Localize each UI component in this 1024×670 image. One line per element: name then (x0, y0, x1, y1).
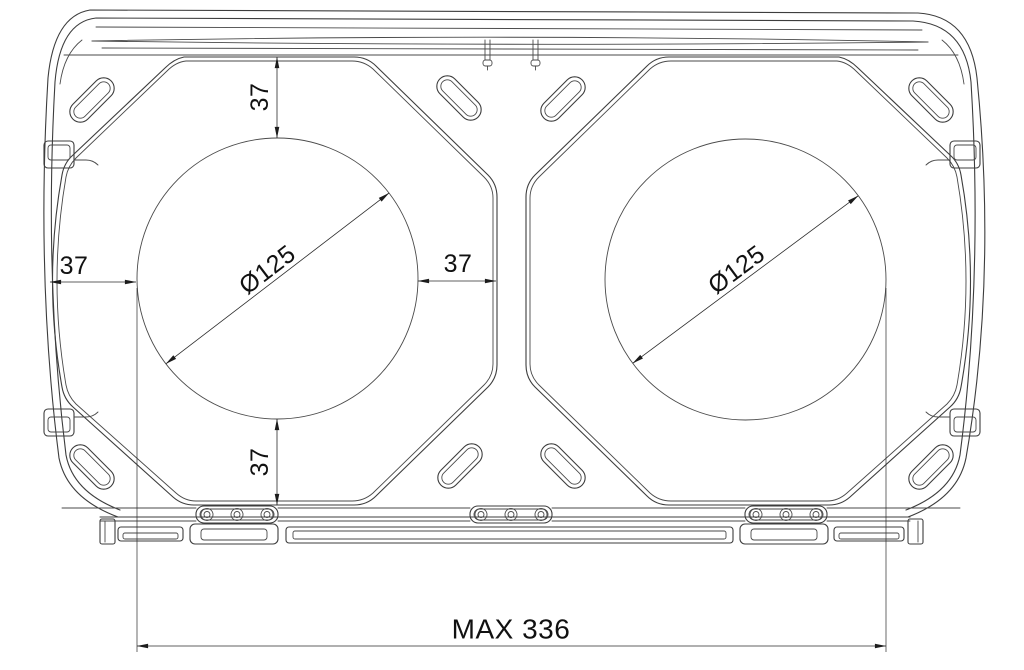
dim-label-left-margin: 37 (60, 252, 89, 280)
flange-rail-3 (286, 527, 733, 543)
mounting-slot-center-bottom-left (433, 439, 486, 492)
flange-rail-5 (834, 527, 904, 541)
rim-line-2 (102, 48, 918, 50)
rim-line-1 (96, 27, 922, 30)
retainer-hooks (44, 141, 980, 436)
mounting-slot-center-top-left (432, 71, 485, 124)
mounting-slot-bottom-left (65, 440, 118, 493)
flange-rail-2 (190, 524, 278, 544)
mounting-slot-top-right (904, 73, 957, 126)
enclosure-outer-outline (44, 10, 985, 517)
dim-label-diameter-right: Ø125 (703, 240, 770, 300)
enclosure-shell (44, 10, 985, 517)
dim-label-max-width: MAX 336 (452, 614, 571, 645)
dimension-annotations: 37 37 37 37 Ø125 Ø125 MAX 336 (50, 57, 886, 652)
plate-right-inner-edge (530, 61, 966, 501)
dim-label-diameter-left: Ø125 (234, 240, 301, 301)
corner-arc-left (60, 40, 82, 84)
dim-label-top-margin: 37 (246, 83, 274, 112)
clip-tab-center (470, 506, 552, 523)
mounting-slot-top-left (65, 73, 118, 126)
mounting-slots (65, 71, 957, 493)
dim-label-bottom-margin: 37 (246, 448, 274, 477)
gasket-lens-bottom (92, 41, 928, 44)
cad-drawing-page: 37 37 37 37 Ø125 Ø125 MAX 336 (0, 0, 1024, 670)
flange-rail-4 (740, 524, 828, 544)
mounting-slot-center-top-right (536, 72, 589, 125)
dim-label-center-margin: 37 (444, 250, 473, 278)
flange-endcap-right (908, 519, 923, 544)
mounting-plate-right (526, 57, 971, 505)
flange-endcap-left (100, 519, 115, 544)
clip-tab-right (745, 506, 827, 523)
bottom-flange (62, 506, 960, 544)
enclosure-inner-outline (51, 18, 975, 510)
mounting-slot-center-bottom-right (536, 439, 589, 492)
clip-tab-left (196, 506, 278, 523)
gasket-lens-top (92, 37, 928, 42)
technical-drawing-canvas: 37 37 37 37 Ø125 Ø125 MAX 336 (0, 0, 1024, 670)
flange-rail-1 (118, 527, 183, 541)
mounting-slot-bottom-right (904, 440, 957, 493)
